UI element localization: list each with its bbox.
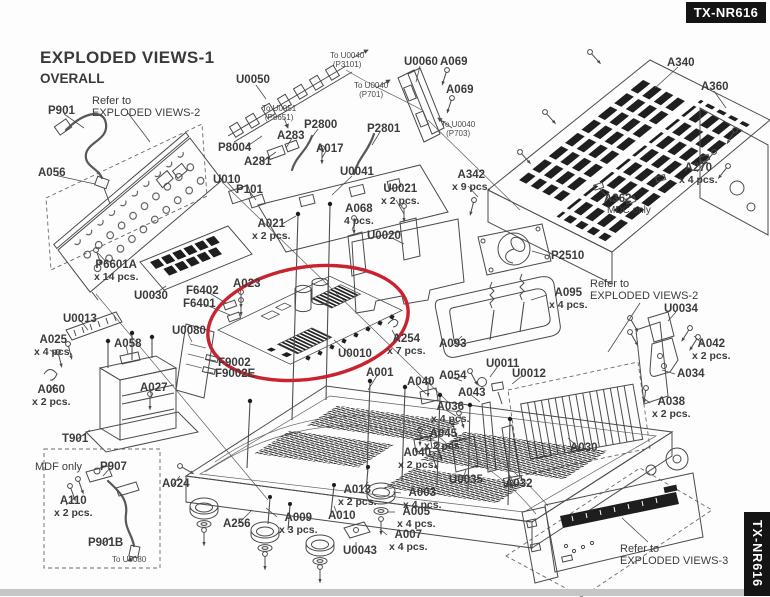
- part-label-a024: A024: [162, 478, 190, 491]
- part-label-mdf-only: MDF only: [35, 461, 82, 473]
- part-label-p2510: P2510: [551, 250, 584, 263]
- part-label-u0030: U0030: [134, 290, 168, 303]
- part-label-a038: A038x 2 pcs.: [652, 396, 691, 420]
- part-label-f9002e: F9002E: [215, 368, 255, 381]
- part-label-u0060: U0060: [404, 56, 438, 69]
- part-label-a001: A001: [366, 367, 394, 380]
- part-label-a068: A0684 pcs.: [344, 203, 374, 227]
- part-label-a281: A281: [244, 156, 272, 169]
- part-label-a027: A027: [140, 382, 168, 395]
- part-label-a017: A017: [316, 143, 344, 156]
- part-label-p901b: P901B: [88, 537, 123, 550]
- part-label-u0020: U0020: [367, 230, 401, 243]
- part-label-to-u0040: To U0040(P701): [354, 82, 388, 100]
- part-label-to-u0040: To U0040(P703): [441, 121, 475, 139]
- part-label-a340: A340: [667, 57, 695, 70]
- part-label-a005: A005x 4 pcs.: [397, 506, 436, 530]
- part-label-a283: A283: [277, 130, 305, 143]
- part-label-a360: A360: [701, 81, 729, 94]
- exploded-view-page: EXPLODED VIEWS-1 OVERALL TX-NR616 TX-NR6…: [0, 0, 770, 597]
- part-label-a056: A056: [38, 167, 66, 180]
- part-labels-layer: To U0040(P3101)To U0040(P701)To U0051(P8…: [0, 0, 770, 597]
- part-label-a256: A256: [223, 518, 251, 531]
- part-label-a043: A043: [458, 387, 486, 400]
- part-label-p101: P101: [236, 184, 263, 197]
- part-label-a362: A362: [604, 193, 632, 206]
- part-label-a093: A093: [439, 338, 467, 351]
- part-label-u0034: U0034: [664, 303, 698, 316]
- part-label-a058: A058: [114, 338, 142, 351]
- part-label-to-u0051: To U0051(P8651): [262, 105, 296, 123]
- part-label-to-u0040: To U0040(P3101): [330, 52, 364, 70]
- part-label-a013: A013x 2 pcs.: [338, 484, 377, 508]
- part-label-a025: A025x 4 pcs.: [34, 334, 73, 358]
- part-label-u0021: U0021x 2 pcs.: [381, 183, 420, 207]
- part-label-a054: A054: [439, 370, 467, 383]
- part-label-a023: A023: [233, 278, 261, 291]
- part-label-f6401: F6401: [183, 298, 216, 311]
- part-label-a040: A040: [407, 376, 435, 389]
- part-label-a009: A009x 3 pcs.: [279, 512, 318, 536]
- part-label-a034: A034: [677, 368, 705, 381]
- part-label-a030: A030: [570, 442, 598, 455]
- part-label-a042: A042x 2 pcs.: [692, 338, 731, 362]
- part-label-f6402: F6402: [186, 285, 219, 298]
- part-label-u0041: U0041: [340, 166, 374, 179]
- part-label-a021: A021x 2 pcs.: [252, 218, 291, 242]
- part-label-a045: A045x 2 pcs.: [424, 428, 463, 452]
- part-label-a069: A069: [446, 84, 474, 97]
- part-label-u0080: U0080: [172, 325, 206, 338]
- part-label-p2801: P2801: [367, 123, 400, 136]
- part-label-p8004: P8004: [218, 142, 251, 155]
- part-label-a032: A032: [505, 478, 533, 491]
- part-label-refer-to: Refer toEXPLODED VIEWS-2: [590, 278, 698, 302]
- part-label-a254: A254x 7 pcs.: [387, 333, 426, 357]
- part-label-refer-to: Refer toEXPLODED VIEWS-3: [620, 543, 728, 567]
- part-label-a060: A060x 2 pcs.: [32, 384, 71, 408]
- part-label-refer-to: Refer toEXPLODED VIEWS-2: [92, 95, 200, 119]
- part-label-a095: A095x 4 pcs.: [549, 287, 588, 311]
- part-label-a069: A069: [440, 56, 468, 69]
- part-label-a270: A270x 4 pcs.: [679, 162, 718, 186]
- part-label-a010: A010: [328, 510, 356, 523]
- part-label-a342: A342x 9 pcs.: [452, 169, 491, 193]
- part-label-u0050: U0050: [236, 74, 270, 87]
- part-label-p901: P901: [48, 105, 75, 118]
- part-label-u0012: U0012: [512, 368, 546, 381]
- part-label-a007: A007x 4 pcs.: [389, 529, 428, 553]
- part-label-u0035: U0035: [449, 474, 483, 487]
- part-label-t901: T901: [62, 433, 88, 446]
- part-label-a110: A110x 2 pcs.: [54, 495, 93, 519]
- part-label-u0043: U0043: [343, 545, 377, 558]
- part-label-u0013: U0013: [63, 313, 97, 326]
- part-label-p6601a: P6601Ax 14 pcs.: [94, 259, 138, 283]
- part-label-u0010: U0010: [338, 348, 372, 361]
- part-label-a036: A036x 4 pcs.: [431, 401, 470, 425]
- part-label-mdc-only: MDC only: [607, 205, 651, 216]
- part-label-to-u0080: To U0080: [112, 556, 146, 565]
- part-label-p2800: P2800: [304, 119, 337, 132]
- part-label-p907: P907: [100, 461, 127, 474]
